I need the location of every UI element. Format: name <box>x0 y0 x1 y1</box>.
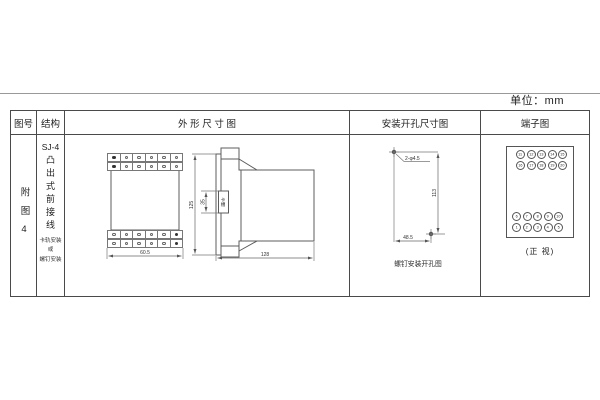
terminal-strip-row <box>107 162 183 171</box>
terminal-7: 7 <box>523 212 532 221</box>
side-view-bottom-wedge <box>239 241 257 251</box>
terminal-9: 9 <box>544 212 553 221</box>
screw-head-icon <box>175 165 179 169</box>
screw-head-icon <box>112 156 116 160</box>
side-view-top-tab <box>221 148 239 159</box>
screw-head-icon <box>162 242 166 246</box>
rail-slot-label: 卡槽 <box>220 196 226 208</box>
screw-head-icon <box>150 165 154 169</box>
screw-terminal <box>145 162 159 171</box>
screw-terminal <box>157 239 171 248</box>
screw-terminal <box>157 162 171 171</box>
screw-terminal <box>170 239 184 248</box>
side-view-body <box>241 170 314 241</box>
screw-terminal <box>107 162 121 171</box>
screw-head-icon <box>125 165 129 169</box>
terminal-14: 14 <box>548 150 557 159</box>
screw-terminal <box>132 239 146 248</box>
dimension-table: 图号 结构 外 形 尺 寸 图 安装开孔尺寸图 端子图 附图4 SJ-4 凸出式… <box>10 110 590 297</box>
screw-terminal <box>157 230 171 239</box>
terminal-row: 1617181920 <box>516 161 567 170</box>
screw-terminal <box>170 153 184 162</box>
front-view-body <box>111 170 179 230</box>
screw-terminal <box>145 230 159 239</box>
front-width-value: 60.5 <box>140 250 150 256</box>
screw-head-icon <box>125 156 129 160</box>
side-depth-value: 128 <box>261 252 270 258</box>
screw-head-icon <box>150 233 154 237</box>
header-structure: 结构 <box>37 111 65 135</box>
mounting-note-line: 或 <box>39 246 61 255</box>
screw-terminal <box>120 239 134 248</box>
terminal-row: 12345 <box>512 223 563 232</box>
screw-head-icon <box>137 233 141 237</box>
side-view-bottom-tab <box>221 246 239 257</box>
terminal-4: 4 <box>544 223 553 232</box>
terminal-11: 11 <box>516 150 525 159</box>
screw-head-icon <box>112 165 116 169</box>
terminal-19: 19 <box>548 161 557 170</box>
screw-terminal <box>145 239 159 248</box>
screw-head-icon <box>137 156 141 160</box>
header-fig-no: 图号 <box>11 111 37 135</box>
side-view-top-wedge <box>239 159 257 170</box>
screw-terminal <box>170 230 184 239</box>
terminal-caption: (正 视) <box>506 246 574 257</box>
hole-height-value: 113 <box>432 189 438 197</box>
units-label: 单位：mm <box>510 92 564 108</box>
side-height-value: 125 <box>189 201 195 210</box>
terminal-18: 18 <box>537 161 546 170</box>
screw-terminal <box>132 162 146 171</box>
mounting-drawing-cell: 2-φ4.5 113 48.5 螺钉安装开孔图 <box>350 135 481 296</box>
screw-head-icon <box>112 242 116 246</box>
screw-head-icon <box>150 242 154 246</box>
screw-head-icon <box>137 242 141 246</box>
header-mounting: 安装开孔尺寸图 <box>350 111 481 135</box>
structure-type-label: 凸出式前接线 <box>44 155 57 233</box>
front-width-dimension: 60.5 <box>107 248 183 259</box>
terminal-6: 6 <box>512 212 521 221</box>
structure-cell: SJ-4 凸出式前接线 卡轨安装 或 螺钉安装 <box>37 135 65 296</box>
terminal-10: 10 <box>554 212 563 221</box>
terminal-1: 1 <box>512 223 521 232</box>
slot-dim-value: 35 <box>201 199 207 205</box>
screw-terminal <box>120 162 134 171</box>
screw-head-icon <box>125 242 129 246</box>
screw-head-icon <box>162 233 166 237</box>
screw-head-icon <box>175 233 179 237</box>
screw-terminal <box>170 162 184 171</box>
terminal-17: 17 <box>527 161 536 170</box>
terminal-row: 678910 <box>512 212 563 221</box>
slot-dimension: 35 <box>201 191 219 213</box>
terminal-16: 16 <box>516 161 525 170</box>
mounting-drawing: 2-φ4.5 113 48.5 螺钉安装开孔图 <box>350 135 481 296</box>
screw-terminal <box>157 153 171 162</box>
outline-drawing-cell: 60.5 卡槽 125 35 <box>65 135 350 296</box>
screw-terminal <box>145 153 159 162</box>
terminal-strip-row <box>107 153 183 162</box>
mounting-note-line: 螺钉安装 <box>39 256 61 265</box>
terminal-row: 1112131415 <box>516 150 567 159</box>
screw-head-icon <box>150 156 154 160</box>
terminal-2: 2 <box>523 223 532 232</box>
hole-label: 2-φ4.5 <box>405 156 420 162</box>
model-label: SJ-4 <box>42 142 59 152</box>
screw-head-icon <box>112 233 116 237</box>
screw-terminal <box>132 230 146 239</box>
screw-head-icon <box>137 165 141 169</box>
terminal-13: 13 <box>537 150 546 159</box>
screw-terminal <box>107 230 121 239</box>
terminal-strip-row <box>107 230 183 239</box>
screw-head-icon <box>162 165 166 169</box>
screw-head-icon <box>175 156 179 160</box>
screw-terminal <box>107 153 121 162</box>
screw-terminal <box>120 230 134 239</box>
header-terminal: 端子图 <box>481 111 589 135</box>
terminal-20: 20 <box>558 161 567 170</box>
screw-head-icon <box>125 233 129 237</box>
screw-head-icon <box>175 242 179 246</box>
screw-head-icon <box>162 156 166 160</box>
terminal-15: 15 <box>558 150 567 159</box>
screw-terminal <box>132 153 146 162</box>
mounting-note-line: 卡轨安装 <box>39 237 61 246</box>
terminal-5: 5 <box>554 223 563 232</box>
terminal-3: 3 <box>533 223 542 232</box>
screw-terminal <box>107 239 121 248</box>
terminal-12: 12 <box>527 150 536 159</box>
side-view: 卡槽 <box>216 148 314 257</box>
hole-width-value: 48.5 <box>403 235 413 241</box>
header-outline: 外 形 尺 寸 图 <box>65 111 350 135</box>
terminal-8: 8 <box>533 212 542 221</box>
terminal-strip-row <box>107 239 183 248</box>
terminal-drawing-cell: (正 视) 1112131415161718192067891012345 <box>481 135 589 296</box>
mounting-caption: 螺钉安装开孔图 <box>394 259 442 268</box>
fig-number-cell: 附图4 <box>11 135 37 296</box>
screw-terminal <box>120 153 134 162</box>
mounting-note: 卡轨安装 或 螺钉安装 <box>39 237 61 265</box>
fig-number-label: 附图4 <box>17 187 31 244</box>
